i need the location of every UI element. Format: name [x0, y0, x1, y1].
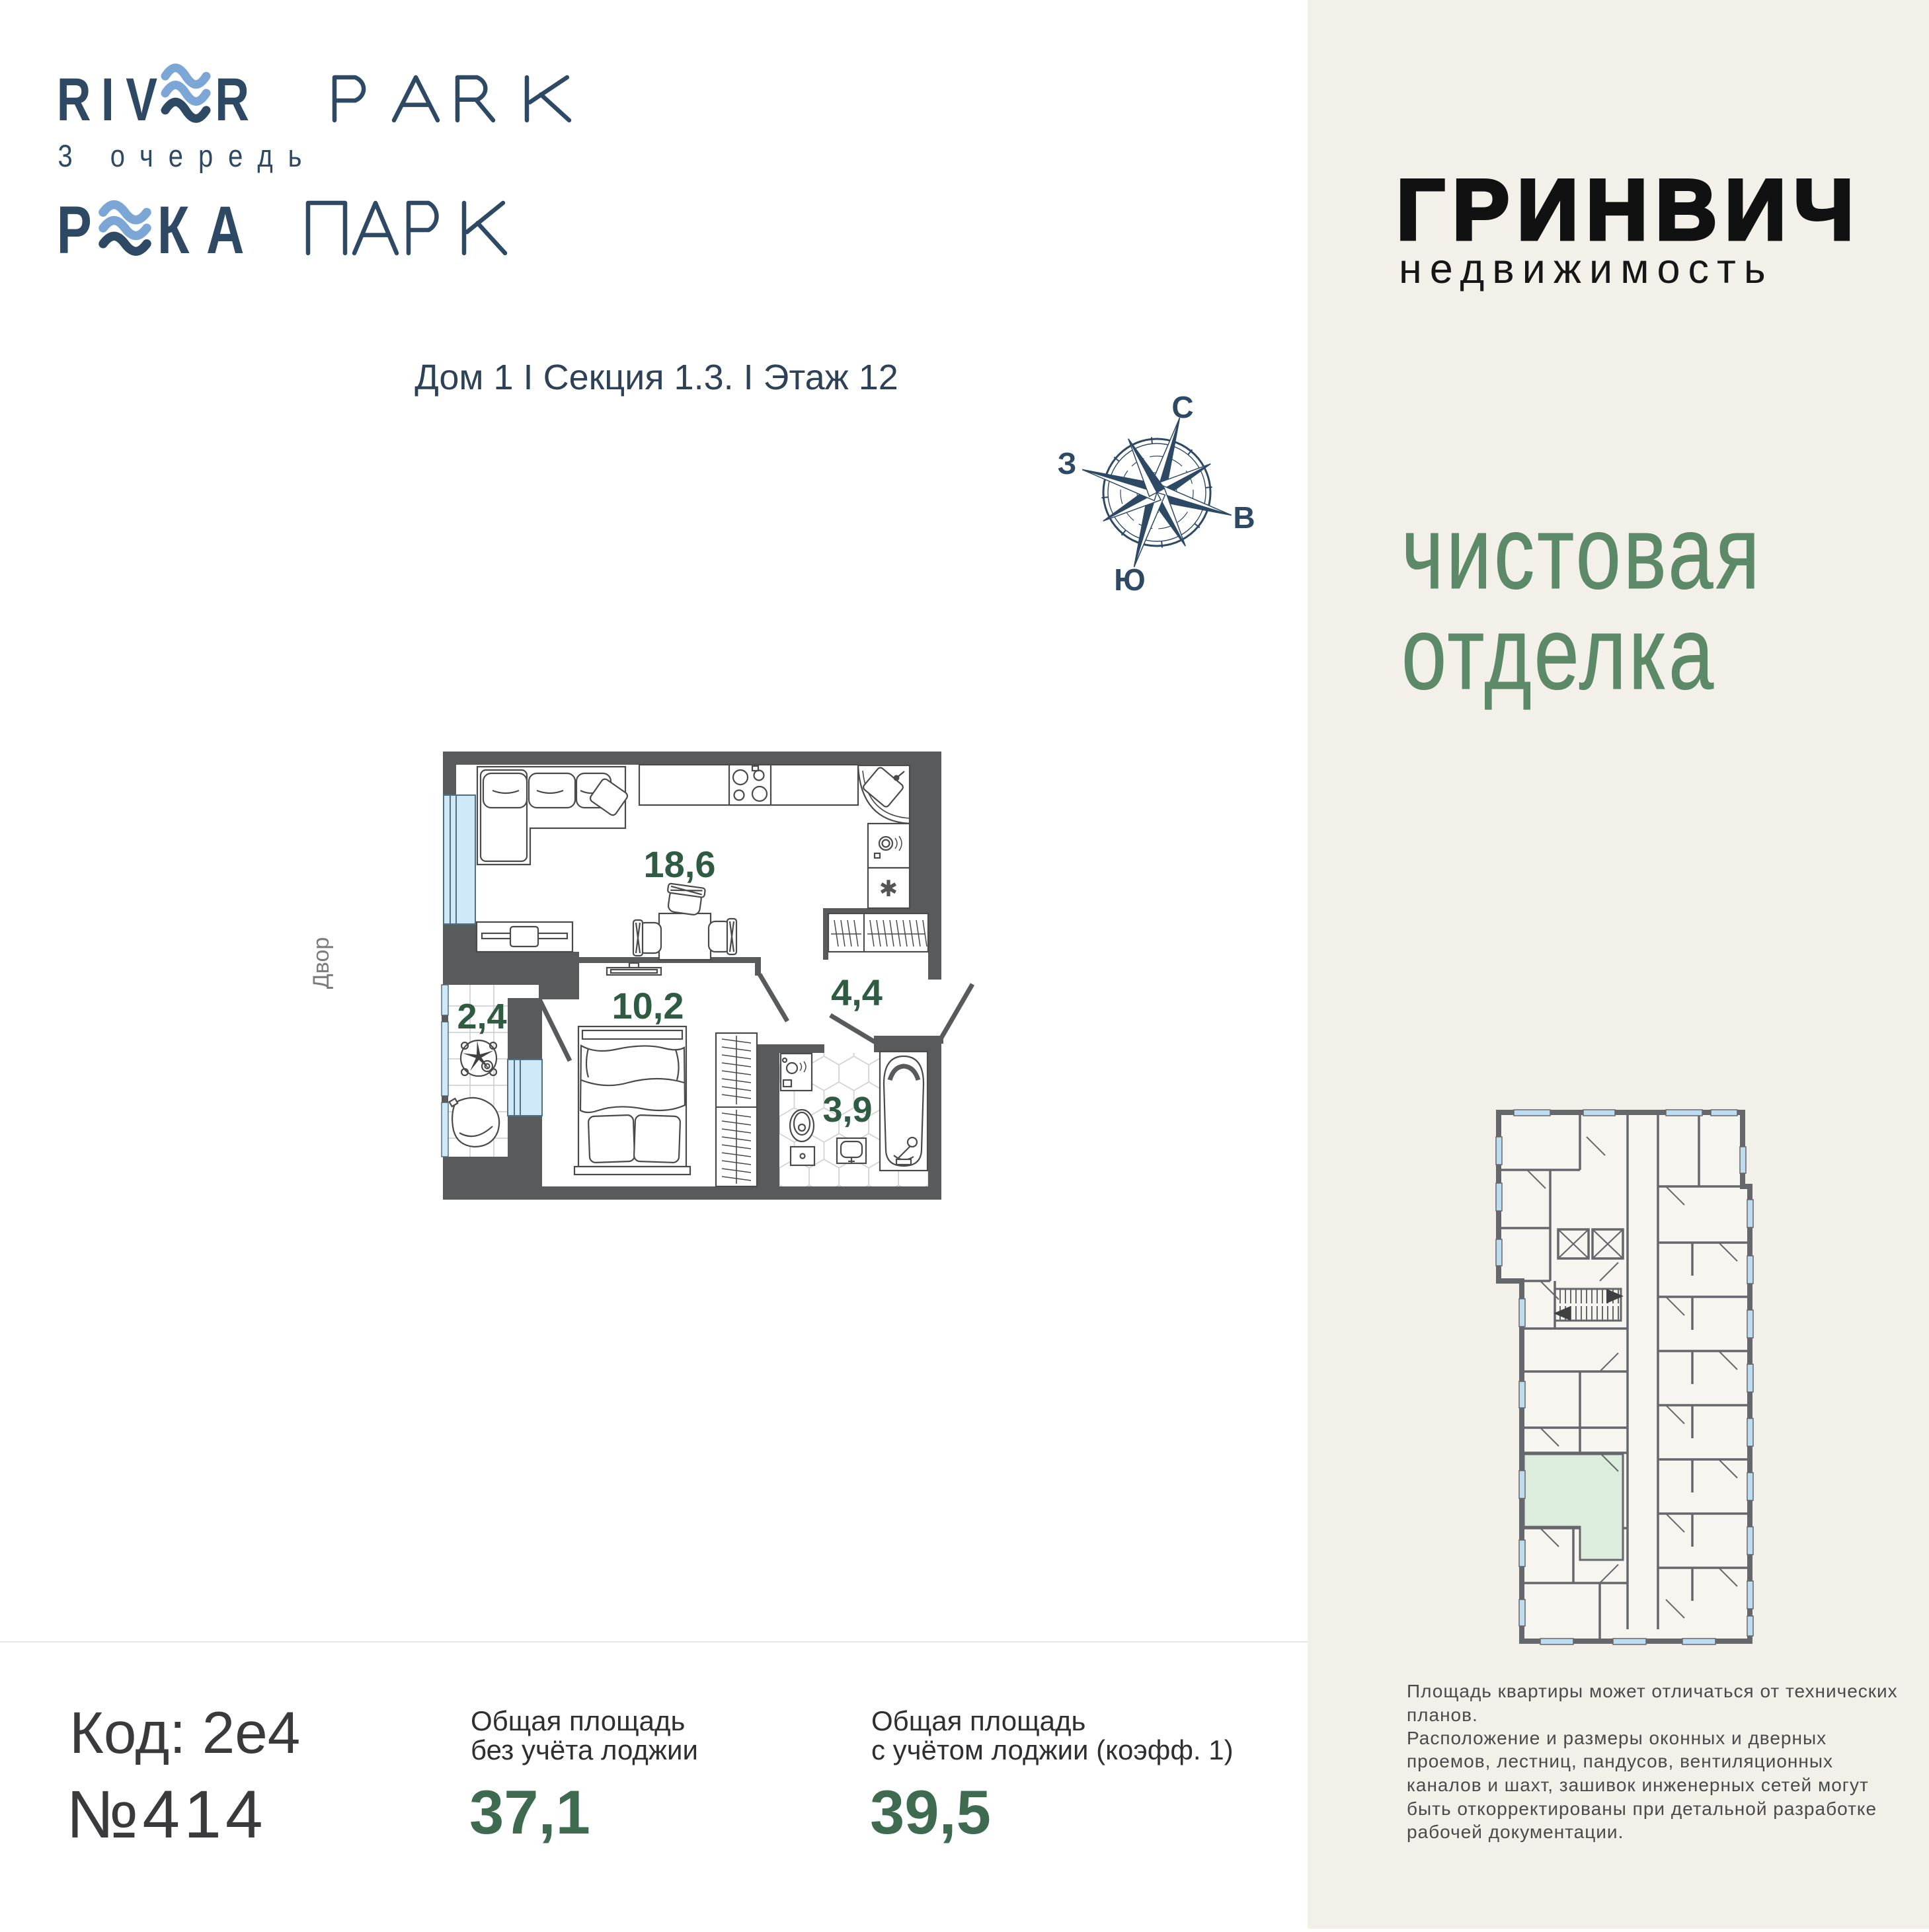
svg-text:37,1: 37,1 — [469, 1777, 590, 1847]
svg-text:Код: 2е4: Код: 2е4 — [69, 1699, 300, 1765]
svg-text:С: С — [1171, 390, 1193, 424]
svg-text:рабочей документации.: рабочей документации. — [1407, 1822, 1624, 1842]
svg-text:без учёта лоджии: без учёта лоджии — [471, 1734, 698, 1765]
svg-text:планов.: планов. — [1407, 1705, 1478, 1725]
svg-text:чистовая: чистовая — [1401, 494, 1762, 610]
svg-text:Общая площадь: Общая площадь — [471, 1705, 685, 1736]
svg-text:проемов, лестниц, пандусов, ве: проемов, лестниц, пандусов, вентиляционн… — [1407, 1751, 1833, 1771]
svg-text:В: В — [1233, 500, 1255, 535]
svg-text:2,4: 2,4 — [457, 997, 506, 1036]
svg-text:Двор: Двор — [309, 937, 334, 989]
svg-text:№414: №414 — [66, 1777, 267, 1852]
svg-text:I: I — [101, 65, 114, 134]
svg-text:Общая площадь: Общая площадь — [871, 1705, 1085, 1736]
svg-text:Ю: Ю — [1114, 562, 1145, 597]
svg-text:18,6: 18,6 — [644, 843, 716, 885]
svg-text:Расположение и размеры оконных: Расположение и размеры оконных и дверных — [1407, 1728, 1827, 1748]
svg-text:Дом 1 I Секция 1.3. I Этаж 12: Дом 1 I Секция 1.3. I Этаж 12 — [414, 358, 898, 397]
svg-text:R: R — [57, 65, 91, 134]
svg-text:R: R — [215, 65, 249, 134]
svg-text:4,4: 4,4 — [831, 972, 883, 1013]
svg-text:недвижимость: недвижимость — [1399, 246, 1774, 292]
svg-text:V: V — [126, 65, 157, 134]
svg-text:3 очередь: 3 очередь — [58, 139, 317, 174]
svg-text:К: К — [157, 193, 190, 268]
svg-text:3,9: 3,9 — [822, 1090, 872, 1130]
svg-text:39,5: 39,5 — [870, 1777, 991, 1847]
svg-text:ГРИНВИЧ: ГРИНВИЧ — [1396, 161, 1861, 258]
svg-text:каналов и шахт, зашивок инжене: каналов и шахт, зашивок инженерных сетей… — [1407, 1775, 1869, 1795]
svg-text:Р: Р — [57, 193, 92, 268]
svg-text:А: А — [206, 193, 244, 268]
svg-text:Площадь квартиры может отличат: Площадь квартиры может отличаться от тех… — [1407, 1681, 1898, 1701]
svg-text:отделка: отделка — [1401, 595, 1716, 711]
svg-text:10,2: 10,2 — [612, 985, 684, 1026]
svg-text:с учётом лоджии (коэфф. 1): с учётом лоджии (коэфф. 1) — [871, 1734, 1234, 1765]
svg-text:быть откорректированы при дета: быть откорректированы при детальной разр… — [1407, 1798, 1877, 1819]
svg-text:✱: ✱ — [879, 876, 898, 902]
svg-text:З: З — [1058, 446, 1077, 481]
